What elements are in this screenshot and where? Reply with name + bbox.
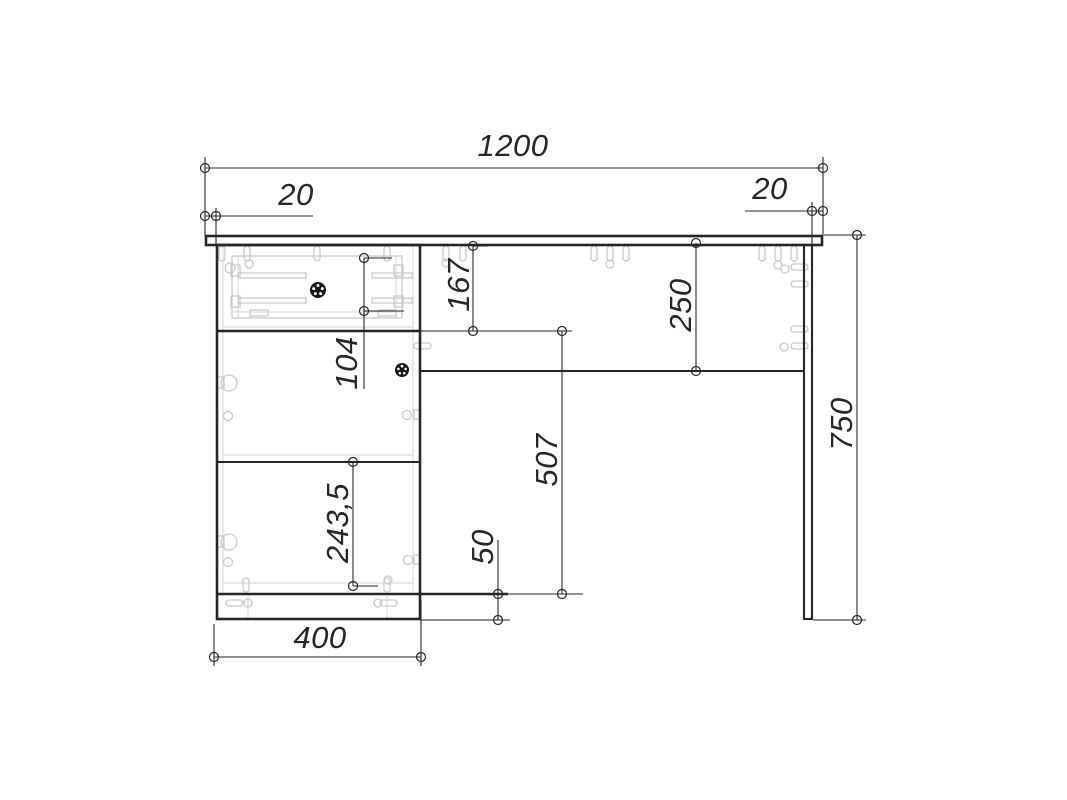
screw-icon: [759, 246, 765, 261]
slide-stop: [250, 310, 268, 316]
screw-icon: [226, 600, 243, 606]
dim-label-cabinet-width: 400: [293, 620, 346, 655]
screw-icon: [775, 246, 781, 261]
knob-dot: [317, 284, 320, 287]
cam-dot: [403, 372, 406, 375]
dim-label-plinth-height: 50: [465, 529, 500, 564]
screw-icon: [791, 281, 808, 287]
screw-icon: [243, 578, 249, 592]
screw-head-icon: [374, 599, 382, 607]
dim-label-shelf-compartment-height: 243,5: [320, 483, 355, 564]
technical-drawing-page: 1200 20 20 167 104 250: [0, 0, 1067, 800]
dim-label-left-overhang: 20: [277, 177, 313, 212]
drawer-slide-rail: [238, 298, 306, 303]
dim-label-apron-height: 250: [663, 278, 698, 332]
dim-label-right-overhang: 20: [751, 171, 787, 206]
drawer-slide-rail: [372, 298, 412, 303]
screw-icon: [244, 246, 250, 261]
cam-dot: [399, 372, 402, 375]
dim-shelf-compartment-height: 243,5: [320, 458, 378, 591]
cam-dot: [404, 368, 407, 371]
screw-icon: [791, 326, 808, 332]
drawing-canvas: 1200 20 20 167 104 250: [0, 0, 1067, 800]
screw-icon: [791, 343, 808, 349]
screw-icon: [384, 578, 390, 592]
cam-dot: [397, 368, 400, 371]
cam-lock-fitting: [395, 363, 409, 377]
hardware-fasteners: [217, 245, 808, 618]
dim-label-drawer-front-height: 167: [441, 257, 476, 311]
screw-icon: [791, 264, 808, 270]
dim-label-knee-opening-height: 507: [529, 432, 564, 486]
dim-apron-height: 250: [663, 239, 701, 376]
screw-icon: [414, 343, 431, 349]
right-leg-panel: [804, 245, 812, 619]
desktop-panel: [206, 236, 822, 245]
dim-label-total-height: 750: [824, 397, 859, 450]
cam-fitting-icon: [403, 411, 412, 420]
screw-icon: [623, 246, 629, 261]
screw-icon: [384, 246, 390, 261]
knob-dot: [319, 292, 322, 295]
cam-fitting-icon: [224, 412, 233, 421]
cam-fitting-icon: [224, 558, 233, 567]
dim-cabinet-width: 400: [210, 600, 426, 666]
screw-icon: [607, 246, 613, 261]
screw-head-icon: [781, 265, 789, 273]
screw-head-icon: [780, 343, 788, 351]
screw-icon: [791, 246, 797, 261]
dim-label-drawer-box-height: 104: [329, 336, 364, 389]
dim-drawer-box-height: 104: [329, 254, 404, 390]
cam-fitting-icon: [225, 263, 235, 273]
dim-plinth-height: 50: [420, 529, 510, 624]
screw-icon: [219, 246, 225, 261]
desk-structure: [206, 236, 822, 619]
knob-dot: [312, 287, 315, 290]
drawer-knob: [310, 282, 326, 298]
knob-dot: [321, 287, 324, 290]
drawer-slide-rail: [372, 273, 412, 278]
screw-icon: [591, 246, 597, 261]
cam-fitting-icon: [404, 556, 413, 565]
knob-dot: [314, 292, 317, 295]
screw-icon: [314, 246, 320, 261]
dim-right-overhang: 20: [745, 171, 828, 245]
dim-total-height: 750: [813, 231, 866, 625]
dim-label-total-width: 1200: [478, 128, 549, 163]
cam-dot: [401, 365, 404, 368]
dim-knee-opening-height: 507: [508, 327, 583, 599]
left-cabinet-body: [217, 245, 420, 619]
drawer-slide-rail: [238, 273, 306, 278]
